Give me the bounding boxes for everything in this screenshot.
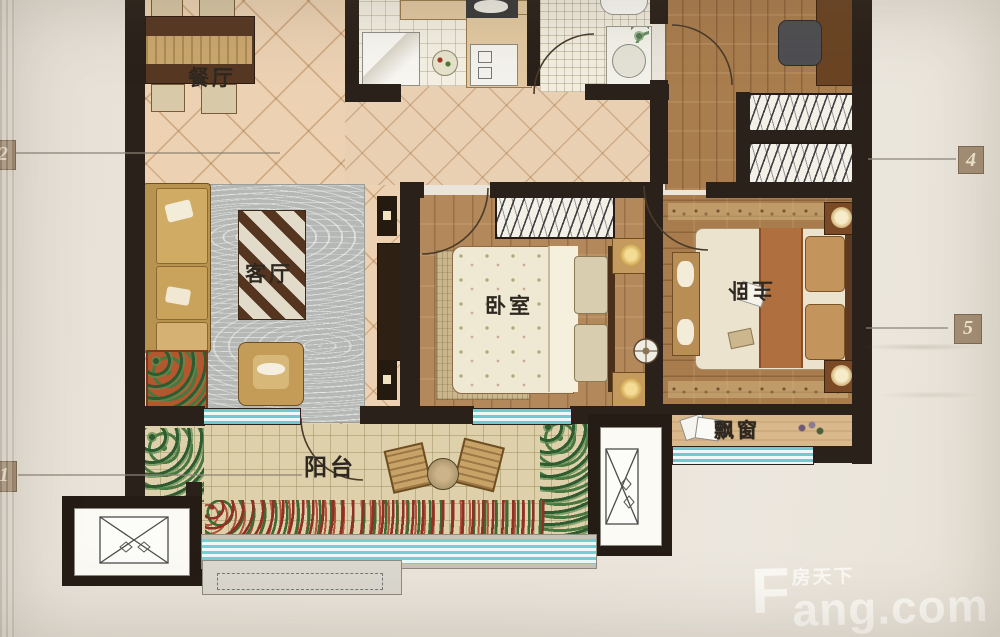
fruit-plate <box>432 50 458 76</box>
fang-watermark: F 房天下 ang.com <box>750 558 989 630</box>
sink-basin <box>474 0 508 13</box>
shaft-interior <box>74 508 190 576</box>
living-room-label: 客厅 <box>245 258 293 288</box>
pillow <box>574 324 608 382</box>
master-bed <box>695 228 855 368</box>
bedroom-label: 卧室 <box>485 290 533 320</box>
lamp <box>620 378 642 400</box>
fridge <box>362 32 420 86</box>
bedroom-bed <box>452 246 614 392</box>
kitchen-sink <box>466 0 518 18</box>
wall <box>810 446 854 463</box>
wall-sconce <box>377 196 397 236</box>
lamp <box>831 365 852 386</box>
wall <box>345 84 401 102</box>
balcony-flowerbed <box>205 500 545 536</box>
sofa-chaise <box>156 322 208 352</box>
balcony-label: 阳台 <box>304 448 356 482</box>
floorplan-photo: 餐厅 客厅 卧室 主卧 阳台 飘窗 2 1 4 5 F 房天下 ang.com <box>0 0 1000 637</box>
study-wardrobe <box>748 93 858 134</box>
lamp <box>620 244 642 266</box>
wall <box>645 196 663 420</box>
toilet <box>600 0 648 15</box>
living-room-window <box>203 408 301 425</box>
bedroom-window <box>472 408 572 425</box>
wall-sconce <box>377 360 397 400</box>
bay-flower <box>794 418 830 440</box>
sofa <box>143 183 211 353</box>
fang-logo-letter: F <box>750 563 791 618</box>
paper-crease <box>860 390 1000 400</box>
armchair-pillow <box>257 363 285 375</box>
pillow <box>805 304 845 360</box>
sconce-light <box>383 375 391 384</box>
callout-marker-5: 5 <box>954 314 982 344</box>
exterior-ledge <box>202 560 402 595</box>
stove <box>470 44 518 86</box>
wall <box>125 406 205 426</box>
bench-cushion <box>677 319 694 345</box>
sconce-light <box>383 211 391 220</box>
wall <box>418 406 474 424</box>
shaft-interior <box>600 427 662 546</box>
flower-planter <box>146 350 208 411</box>
wall <box>650 80 668 184</box>
fang-brand-rest: ang.com <box>792 587 989 629</box>
wall <box>490 182 663 198</box>
bed-bench <box>672 252 700 356</box>
desk-chair <box>778 20 822 66</box>
table-runner <box>146 36 252 64</box>
wall <box>360 406 420 424</box>
burner <box>478 67 492 79</box>
dining-chair <box>151 84 185 112</box>
wall <box>748 130 858 142</box>
burner <box>478 51 492 63</box>
lamp <box>831 207 852 228</box>
bath-plant <box>631 27 649 43</box>
wall <box>400 196 420 424</box>
bench-cushion <box>677 261 694 287</box>
ledge-detail <box>217 573 383 590</box>
callout-marker-4: 4 <box>958 146 984 174</box>
wall <box>650 0 668 24</box>
pillow <box>805 236 845 292</box>
bay-window-label: 飘窗 <box>714 414 760 443</box>
master-bedroom-label: 主卧 <box>725 276 773 306</box>
armchair <box>238 342 304 406</box>
paper-crease <box>0 0 14 637</box>
pillow <box>574 256 608 314</box>
callout-marker-2: 2 <box>0 140 16 170</box>
tv-unit <box>377 243 401 361</box>
sofa-cushion <box>156 188 208 264</box>
callout-marker-1: 1 <box>0 461 17 492</box>
balcony-table <box>427 458 459 490</box>
wall <box>527 0 540 86</box>
bay-window-glass <box>672 446 814 465</box>
wall <box>706 182 872 198</box>
basin <box>612 44 646 78</box>
master-carpet-border <box>668 203 848 220</box>
master-carpet-border <box>668 381 848 398</box>
wall <box>852 0 872 464</box>
dining-room-label: 餐厅 <box>188 62 236 92</box>
